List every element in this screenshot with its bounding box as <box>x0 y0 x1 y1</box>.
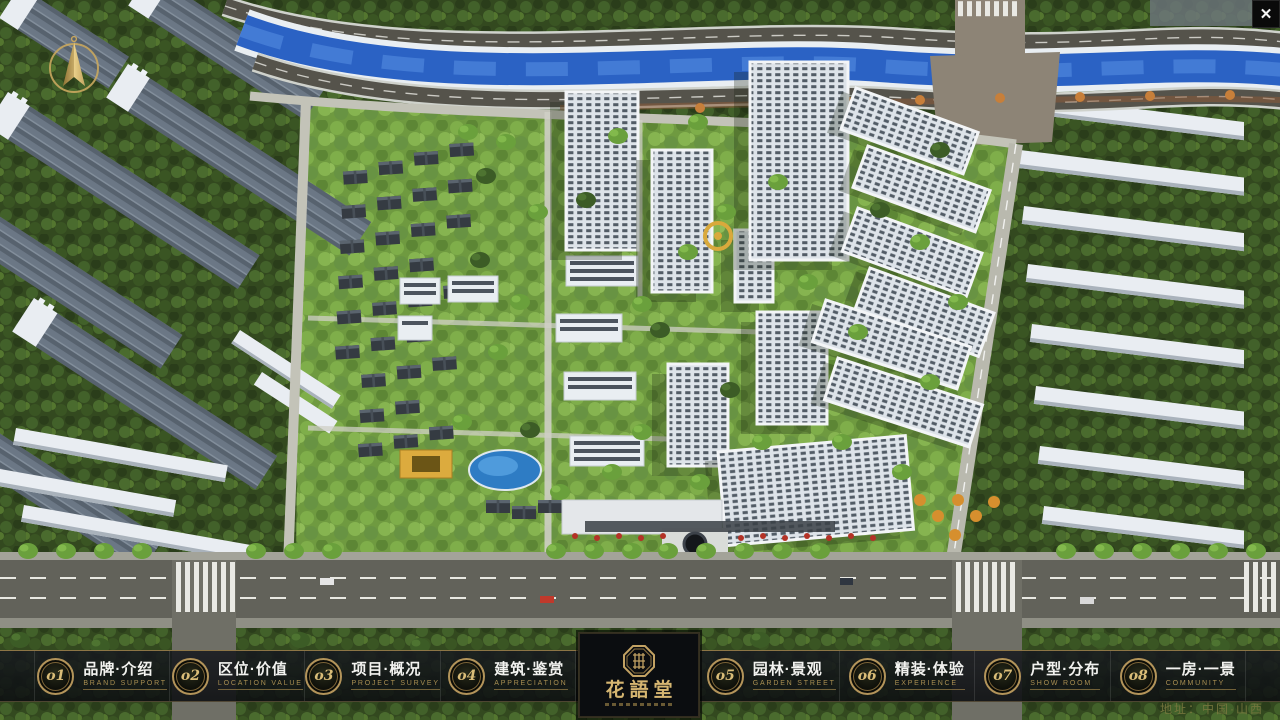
nav-item-garden-street[interactable]: o5 园林·景观 GARDEN STREET <box>704 651 840 701</box>
project-address: 地址：中国·山西 <box>1160 700 1264 717</box>
nav-number-badge: o4 <box>448 658 485 695</box>
brand-name: 花語堂 <box>600 681 677 700</box>
nav-group-right: o5 园林·景观 GARDEN STREET o6 精装·体验 EXPERIEN… <box>704 651 1280 701</box>
brand-tagline-rule <box>605 703 673 706</box>
nav-item-title: 品牌·介绍 <box>83 662 153 677</box>
nav-item-community[interactable]: o8 一房·一景 COMMUNITY <box>1111 651 1247 701</box>
nav-number-badge: o7 <box>984 658 1021 695</box>
nav-item-show-room[interactable]: o7 户型·分布 SHOW ROOM <box>975 651 1111 701</box>
nav-number-badge: o2 <box>172 658 209 695</box>
nav-item-title: 建筑·鉴赏 <box>494 662 564 677</box>
nav-item-title: 区位·价值 <box>218 662 288 677</box>
nav-item-subtitle: PROJECT SURVEY <box>351 680 439 690</box>
brand-logo-panel: 花語堂 <box>578 632 700 718</box>
nav-item-subtitle: SHOW ROOM <box>1030 680 1100 690</box>
close-icon: ✕ <box>1260 5 1273 23</box>
aerial-masterplan-render <box>0 0 1280 720</box>
nav-item-subtitle: APPRECIATION <box>494 680 567 690</box>
close-button[interactable]: ✕ <box>1252 0 1280 28</box>
nav-item-subtitle: LOCATION VALUE <box>218 680 303 690</box>
nav-item-title: 园林·景观 <box>753 662 823 677</box>
compass-north-icon <box>42 32 106 100</box>
nav-item-appreciation[interactable]: o4 建筑·鉴赏 APPRECIATION <box>441 651 576 701</box>
nav-item-project-survey[interactable]: o3 项目·概况 PROJECT SURVEY <box>305 651 440 701</box>
sales-presentation-window: ✕ o1 品牌·介绍 BRAND SUPPORT o2 区位·价值 LOCATI… <box>0 0 1280 720</box>
nav-item-title: 精装·体验 <box>895 662 965 677</box>
nav-item-title: 项目·概况 <box>351 662 421 677</box>
nav-number-badge: o3 <box>305 658 342 695</box>
brand-seal-icon <box>622 644 656 678</box>
nav-item-subtitle: BRAND SUPPORT <box>83 680 167 690</box>
nav-number-badge: o8 <box>1120 658 1157 695</box>
nav-number-badge: o6 <box>849 658 886 695</box>
nav-item-location-value[interactable]: o2 区位·价值 LOCATION VALUE <box>170 651 305 701</box>
nav-item-subtitle: COMMUNITY <box>1166 680 1236 690</box>
nav-item-experience[interactable]: o6 精装·体验 EXPERIENCE <box>840 651 976 701</box>
nav-number-badge: o1 <box>37 658 74 695</box>
nav-item-title: 一房·一景 <box>1166 662 1236 677</box>
nav-item-subtitle: EXPERIENCE <box>895 680 965 690</box>
nav-item-title: 户型·分布 <box>1030 662 1100 677</box>
nav-item-brand-support[interactable]: o1 品牌·介绍 BRAND SUPPORT <box>34 651 170 701</box>
nav-group-left: o1 品牌·介绍 BRAND SUPPORT o2 区位·价值 LOCATION… <box>0 651 576 701</box>
nav-number-badge: o5 <box>707 658 744 695</box>
nav-item-subtitle: GARDEN STREET <box>753 680 836 690</box>
